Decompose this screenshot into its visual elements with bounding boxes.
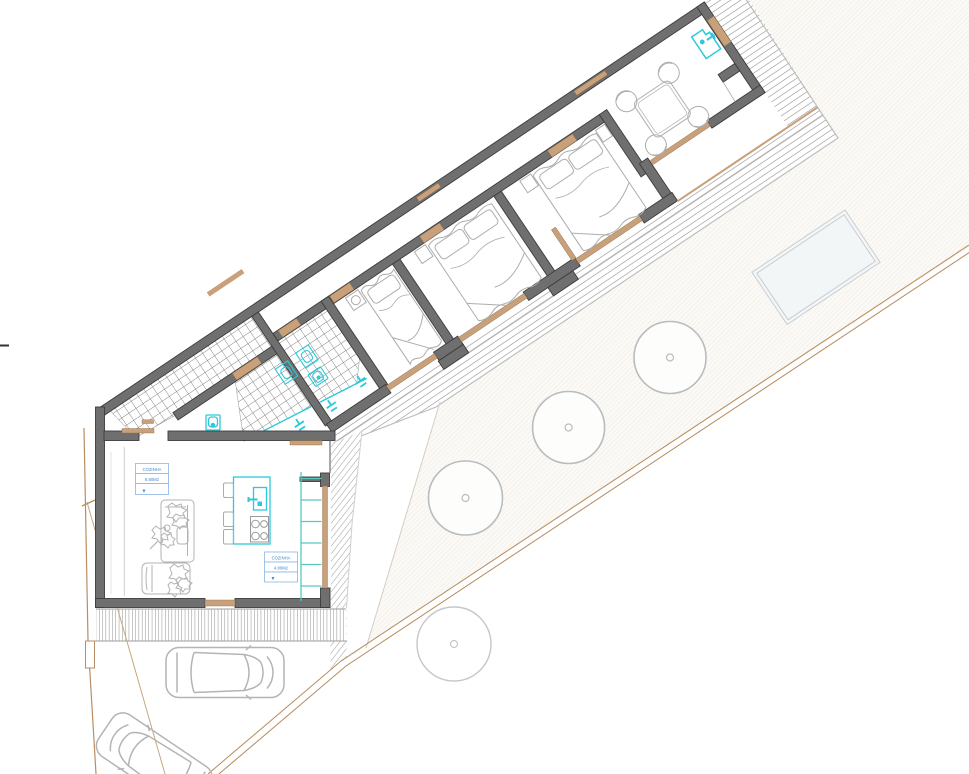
svg-text:8.80M2: 8.80M2	[145, 477, 160, 482]
svg-text:▼: ▼	[142, 489, 147, 495]
svg-text:COZINHA: COZINHA	[143, 467, 162, 472]
svg-text:COZINHA: COZINHA	[272, 556, 291, 561]
svg-text:4.80M2: 4.80M2	[274, 566, 289, 571]
svg-text:▼: ▼	[271, 576, 276, 582]
